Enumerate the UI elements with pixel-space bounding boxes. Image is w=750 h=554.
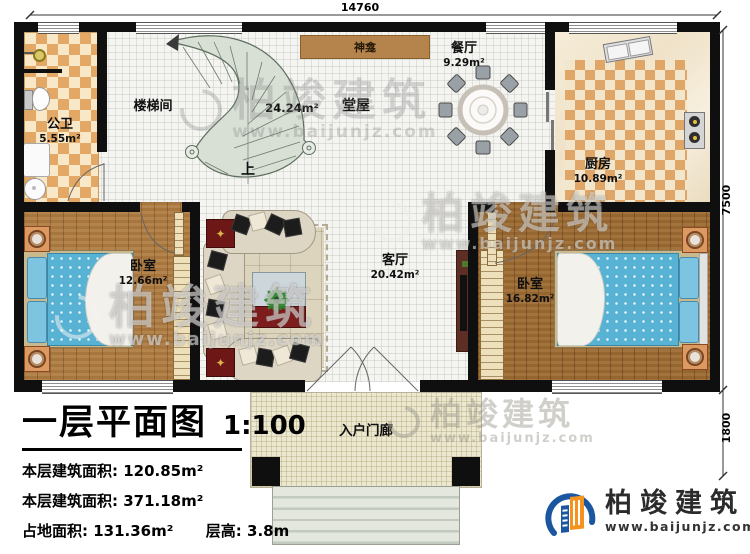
wall [662,380,720,392]
cushion [283,218,303,238]
bed-right [554,250,708,348]
window [136,22,242,34]
brand-logo: 柏竣建筑 www.baijunjz.com [541,484,750,540]
lamp [28,350,46,368]
window [486,22,545,34]
dimension-top: 14760 [330,1,390,14]
nightstand [682,344,708,370]
title-underline [22,448,242,451]
wall [190,202,200,392]
plan-scale: 1:100 [223,411,306,441]
lamp [28,230,46,248]
brand-logo-icon [541,484,597,540]
wall [545,22,569,32]
room-label-bedroom-left: 卧室 12.66m² [108,260,178,287]
red-mat: ✦ [206,219,235,248]
burner-flame [693,120,697,124]
tv-screen [460,275,467,331]
coffee-table-glass [252,272,306,308]
room-label-dining: 餐厅 9.29m² [436,42,492,69]
red-mat: ✦ [206,348,235,377]
wall [710,22,720,392]
room-label-stairwell: 楼梯间 [118,100,188,115]
nightstand [24,346,50,372]
sliding-door-panel [546,92,549,122]
kitchen-sink-basin [606,43,629,60]
wall [420,380,552,392]
wall [97,32,107,152]
kitchen-sink-basin [628,39,651,56]
lamp [686,231,704,249]
plan-title: 一层平面图 [22,394,207,445]
wardrobe [480,250,504,380]
shower-head [33,49,46,62]
wall [14,380,42,392]
dimension-right-lower: 1800 [720,403,734,453]
stove [684,112,705,149]
room-label-kitchen: 厨房 10.89m² [566,158,630,185]
room-label-hall: 堂屋 [330,98,382,114]
dimension-right-upper: 7500 [720,175,734,225]
brand-name: 柏竣建筑 [605,490,750,518]
coffee-table-shelf [252,306,306,328]
window [569,22,677,34]
floor-plan-canvas: 神龛 ✦ ✦ [0,0,750,554]
window [552,380,662,394]
hall-area-label: 24.24m² [262,102,322,115]
room-label-bedroom-right: 卧室 16.82m² [495,278,565,305]
stairs-up-label: 上 [236,162,260,178]
nightstand [682,227,708,253]
pillow [27,301,47,343]
stat-line: 本层建筑面积: 371.18m² [22,490,306,511]
pillow [679,257,699,299]
shower-arm [24,52,34,54]
window [42,380,173,394]
wall [242,22,486,32]
shrine-label: 神龛 [354,39,376,55]
bathroom-cabinet [23,143,50,177]
room-label-living: 客厅 20.42m² [358,254,432,281]
porch-pillar [452,457,480,486]
brand-website: www.baijunjz.com [605,519,750,534]
room-label-porch: 入户门廊 [320,424,412,440]
pillow [27,257,47,299]
cushion [206,299,226,319]
wall [545,150,555,212]
door-leaf [487,212,497,266]
headboard [699,253,708,346]
stat-line: 占地面积: 131.36m² 层高: 3.8m [22,520,306,541]
wall [79,22,136,32]
title-block: 一层平面图 1:100 本层建筑面积: 120.85m² 本层建筑面积: 371… [22,394,306,541]
wall [545,32,555,90]
lamp [686,348,704,366]
wall [14,202,140,212]
bathroom-sink-drain [32,186,36,190]
shrine-altar: 神龛 [300,35,430,59]
shower-divider-wall [24,69,62,73]
window [38,22,79,34]
nightstand [24,226,50,252]
door-leaf [174,212,184,256]
stat-line: 本层建筑面积: 120.85m² [22,460,306,481]
wall [468,202,478,392]
burner-flame [693,136,697,140]
room-label-bathroom: 公卫 5.55m² [24,118,96,145]
pillow [679,301,699,343]
wall [558,202,710,212]
sliding-door-panel [551,120,554,150]
